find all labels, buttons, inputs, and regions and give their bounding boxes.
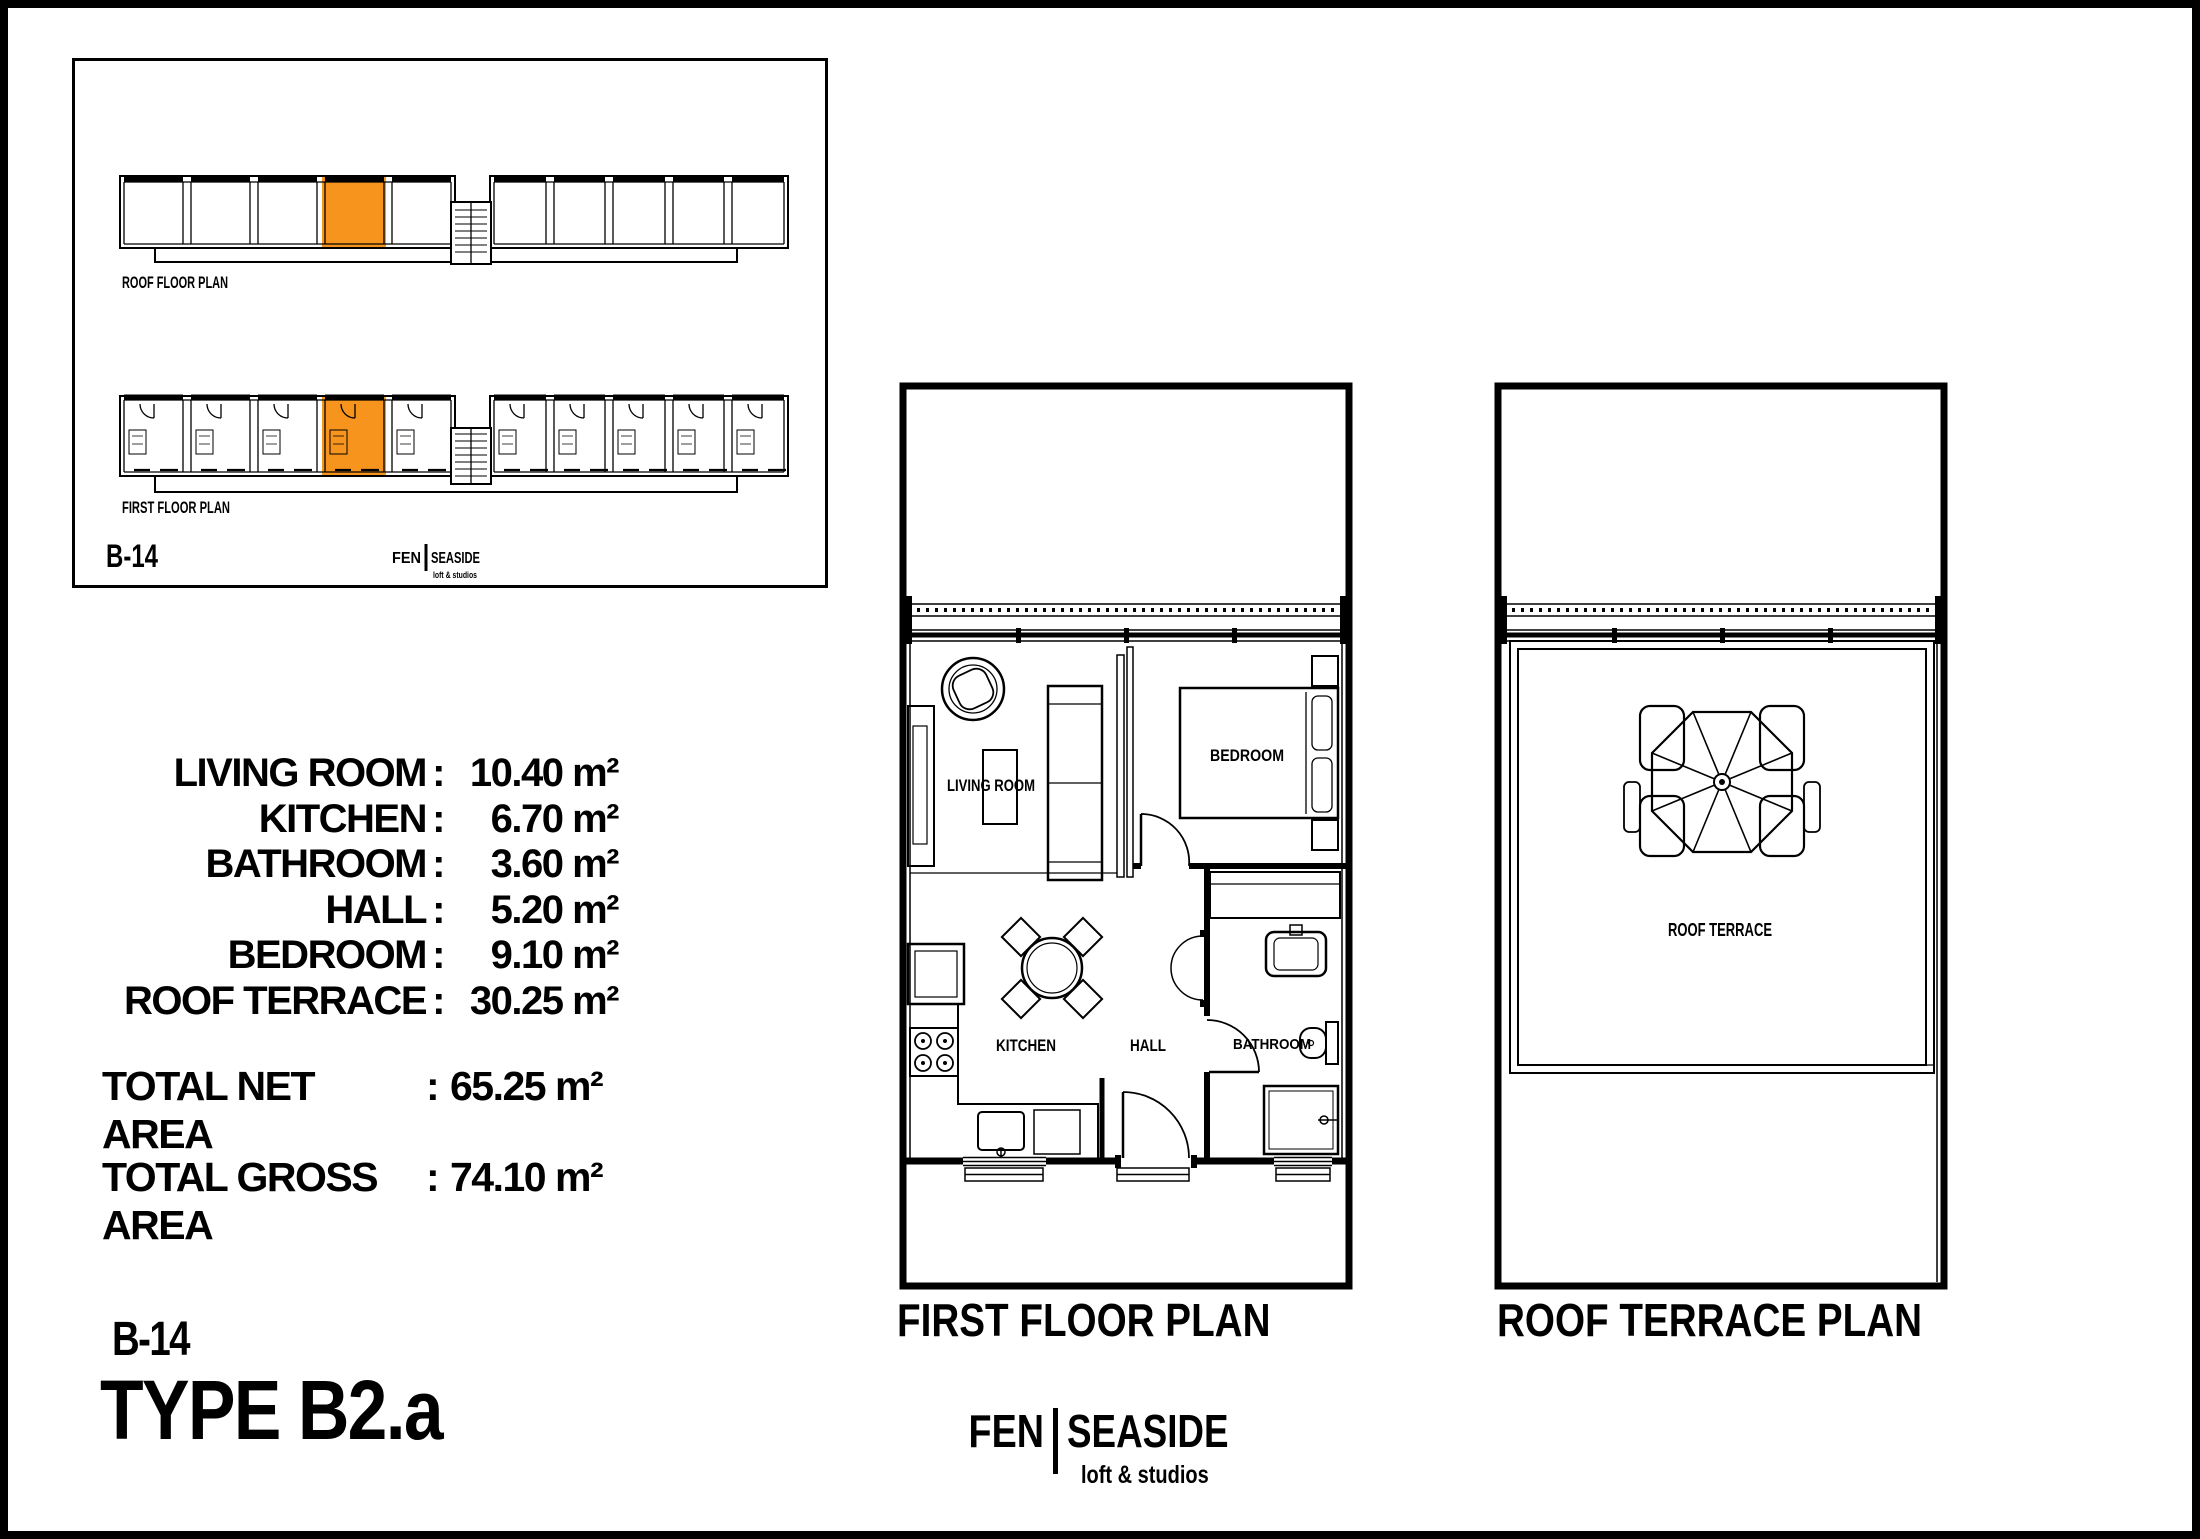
overview-roof-strip — [120, 176, 788, 264]
area-row: BATHROOM : 3.60 m² — [102, 842, 618, 888]
tv-console-icon — [908, 706, 934, 866]
nightstand-icon — [1312, 820, 1338, 850]
area-separator: : — [426, 751, 450, 797]
total-row: TOTAL NET AREA : 65.25 m² — [102, 1062, 618, 1110]
area-label: BATHROOM — [102, 842, 426, 888]
stairs-icon — [451, 202, 491, 264]
total-label: TOTAL NET AREA — [102, 1062, 426, 1158]
stove-icon — [910, 1028, 958, 1076]
counter-appliance — [1034, 1110, 1080, 1154]
area-value: 6.70 m² — [450, 797, 618, 843]
area-label: BEDROOM — [102, 933, 426, 979]
area-totals: TOTAL NET AREA : 65.25 m² TOTAL GROSS AR… — [102, 1062, 618, 1201]
first-floor-plan-title-text: FIRST FLOOR PLAN — [897, 1297, 1270, 1343]
area-value: 3.60 m² — [450, 842, 618, 888]
first-floor-plan-title: FIRST FLOOR PLAN — [897, 1297, 1342, 1343]
area-separator: : — [426, 797, 450, 843]
roof-terrace-plan-drawing: ROOF TERRACE — [1498, 386, 1944, 1286]
sofa-icon — [1048, 686, 1102, 880]
area-row: BEDROOM : 9.10 m² — [102, 933, 618, 979]
total-row: TOTAL GROSS AREA : 74.10 m² — [102, 1153, 618, 1201]
area-separator: : — [426, 842, 450, 888]
brand-left: FEN — [969, 1408, 1044, 1454]
terrace-railing — [1510, 641, 1934, 1073]
brand-divider — [1053, 1408, 1058, 1474]
brand-logo: FEN SEASIDE loft & studios — [952, 1408, 1269, 1490]
area-label: KITCHEN — [102, 797, 426, 843]
overview-inset: ROOF FLOOR PLAN FIRST FLOOR PLAN B-14 FE… — [74, 60, 827, 587]
overview-brand-logo: FEN SEASIDE loft & studios — [392, 544, 480, 581]
brand-right: SEASIDE — [1067, 1408, 1229, 1454]
area-separator: : — [426, 979, 450, 1025]
overview-first-strip — [120, 396, 788, 492]
brand-left: FEN — [392, 550, 421, 567]
area-row: HALL : 5.20 m² — [102, 888, 618, 934]
overview-roof-plan-label: ROOF FLOOR PLAN — [122, 273, 228, 292]
roof-terrace-plan-title: ROOF TERRACE PLAN — [1497, 1297, 2003, 1343]
total-value: 65.25 m² — [450, 1062, 618, 1158]
total-value: 74.10 m² — [450, 1153, 618, 1249]
roof-terrace-plan-title-text: ROOF TERRACE PLAN — [1497, 1297, 1922, 1343]
closet-door-arcs — [1171, 936, 1203, 1000]
kitchen-label: KITCHEN — [996, 1036, 1056, 1055]
brand-tagline: loft & studios — [433, 570, 477, 581]
area-value: 5.20 m² — [450, 888, 618, 934]
hall-label: HALL — [1130, 1036, 1166, 1055]
fridge-icon — [908, 944, 964, 1004]
dining-table-icon — [1002, 918, 1102, 1018]
overview-first-plan-label: FIRST FLOOR PLAN — [122, 498, 230, 517]
nightstand-icon — [1312, 656, 1338, 686]
brand-divider — [425, 544, 428, 571]
living-room-label: LIVING ROOM — [947, 776, 1035, 795]
area-label: LIVING ROOM — [102, 751, 426, 797]
area-row: ROOF TERRACE : 30.25 m² — [102, 979, 618, 1025]
closet-icon — [1210, 872, 1340, 918]
kitchen-sink-icon — [978, 1112, 1024, 1158]
entrance-door-arc — [1123, 1092, 1189, 1158]
overview-unit-code: B-14 — [106, 538, 158, 574]
area-separator: : — [426, 1153, 450, 1249]
area-value: 30.25 m² — [450, 979, 618, 1025]
first-floor-plan-drawing: LIVING ROOM BEDROOM KITCHEN HALL BATHROO… — [903, 386, 1349, 1286]
armchair-icon — [942, 658, 1004, 720]
stairs-icon — [451, 428, 491, 484]
shower-icon — [1264, 1086, 1338, 1154]
highlighted-unit-roof — [322, 177, 386, 247]
bedroom-door-arc — [1141, 814, 1189, 866]
bathroom-label: BATHROOM — [1233, 1036, 1311, 1053]
thresholds — [965, 1168, 1330, 1181]
highlighted-unit-first — [322, 397, 386, 475]
area-value: 10.40 m² — [450, 751, 618, 797]
brand-right: SEASIDE — [431, 550, 480, 567]
area-separator: : — [426, 933, 450, 979]
area-value: 9.10 m² — [450, 933, 618, 979]
bedroom-label: BEDROOM — [1210, 746, 1284, 765]
roof-terrace-label: ROOF TERRACE — [1668, 920, 1772, 940]
total-label: TOTAL GROSS AREA — [102, 1153, 426, 1249]
bathroom-sink-icon — [1266, 925, 1326, 976]
area-row: KITCHEN : 6.70 m² — [102, 797, 618, 843]
unit-code: B-14 — [112, 1316, 189, 1364]
brand-tagline: loft & studios — [1081, 1461, 1231, 1490]
area-label: HALL — [102, 888, 426, 934]
area-table: LIVING ROOM : 10.40 m² KITCHEN : 6.70 m²… — [102, 751, 618, 1024]
patio-table-icon — [1652, 712, 1792, 852]
page-title: TYPE B2.a — [100, 1368, 442, 1452]
area-separator: : — [426, 1062, 450, 1158]
area-label: ROOF TERRACE — [102, 979, 426, 1025]
area-separator: : — [426, 888, 450, 934]
area-row: LIVING ROOM : 10.40 m² — [102, 751, 618, 797]
floor-plan-sheet: ROOF FLOOR PLAN FIRST FLOOR PLAN B-14 FE… — [0, 0, 2200, 1539]
